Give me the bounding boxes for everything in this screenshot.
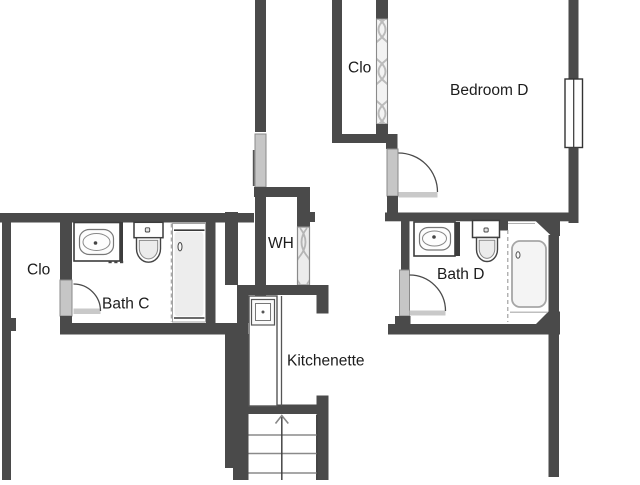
svg-text:Bath C: Bath C [102,296,149,313]
svg-text:Clo: Clo [348,60,371,77]
svg-text:WH: WH [268,235,294,252]
svg-text:Bath D: Bath D [437,266,484,283]
svg-text:Clo: Clo [27,262,50,279]
svg-text:Kitchenette: Kitchenette [287,353,365,370]
svg-text:Bedroom D: Bedroom D [450,82,528,99]
